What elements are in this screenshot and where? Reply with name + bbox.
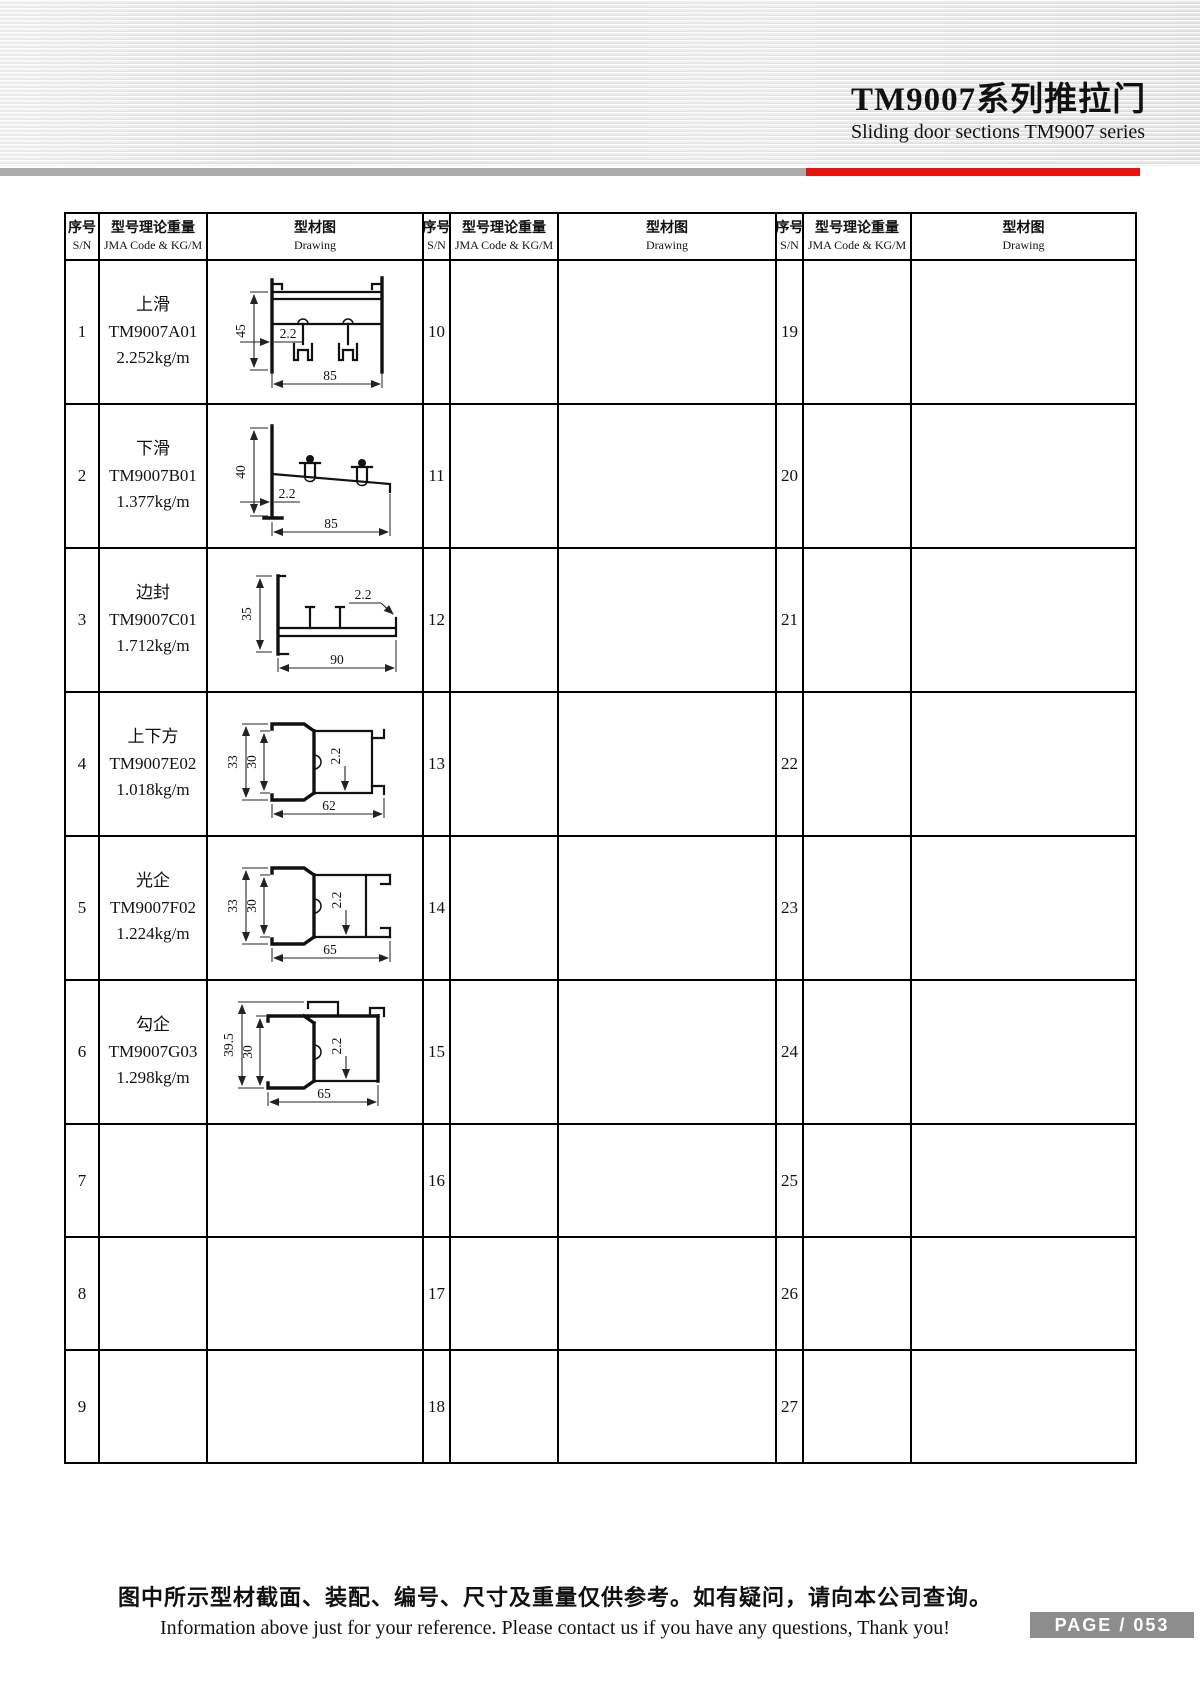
- dim-width: 90: [330, 652, 344, 667]
- profile-code: TM9007E02: [110, 751, 197, 777]
- col-header-code-cn: 型号理论重量: [815, 220, 899, 238]
- col-header-code: 型号理论重量 JMA Code & KG/M: [100, 214, 208, 261]
- page-title: TM9007系列推拉门 Sliding door sections TM9007…: [851, 82, 1146, 143]
- profile-name: 下滑: [136, 436, 170, 462]
- drawing-cell-empty: [559, 693, 777, 837]
- profile-weight: 1.377kg/m: [116, 489, 189, 515]
- code-cell-empty: [451, 1238, 559, 1351]
- profile-drawing-hook-stile: 39.5 30 2.2 65: [210, 982, 420, 1122]
- col-header-drawing-cn: 型材图: [294, 220, 336, 238]
- sn-cell: 15: [424, 981, 451, 1125]
- col-header-drawing-en: Drawing: [646, 238, 688, 253]
- table-group-1: 序号 S/N 型号理论重量 JMA Code & KG/M 型材图 Drawin…: [66, 214, 424, 1464]
- profile-weight: 2.252kg/m: [116, 345, 189, 371]
- col-header-drawing: 型材图 Drawing: [559, 214, 777, 261]
- col-header-sn-en: S/N: [73, 238, 92, 253]
- footer-note-en: Information above just for your referenc…: [0, 1617, 1110, 1640]
- code-cell-empty: [451, 981, 559, 1125]
- code-cell-empty: [451, 1351, 559, 1464]
- col-header-sn-en: S/N: [780, 238, 799, 253]
- sn-cell: 25: [777, 1125, 804, 1238]
- sn-cell: 11: [424, 405, 451, 549]
- sn-cell: 19: [777, 261, 804, 405]
- col-header-sn: 序号 S/N: [66, 214, 100, 261]
- drawing-cell: 33 30 2.2 65: [208, 837, 424, 981]
- profile-drawing-side-seal: 35 2.2 90: [210, 550, 420, 690]
- dim-width: 62: [322, 798, 336, 813]
- drawing-cell: 45 2.2 85: [208, 261, 424, 405]
- profile-code: TM9007A01: [109, 319, 198, 345]
- sn-cell: 1: [66, 261, 100, 405]
- footer-note: 图中所示型材截面、装配、编号、尺寸及重量仅供参考。如有疑问，请向本公司查询。 I…: [0, 1580, 1110, 1640]
- dim-thickness: 2.2: [355, 587, 372, 602]
- col-header-drawing: 型材图 Drawing: [208, 214, 424, 261]
- drawing-cell-empty: [912, 693, 1137, 837]
- profile-drawing-top-slide: 45 2.2 85: [210, 262, 420, 402]
- drawing-cell-empty: [912, 981, 1137, 1125]
- profile-drawing-bottom-slide: 40 2.2 85: [210, 406, 420, 546]
- code-cell-empty: [100, 1125, 208, 1238]
- drawing-cell-empty: [208, 1238, 424, 1351]
- profile-table: 序号 S/N 型号理论重量 JMA Code & KG/M 型材图 Drawin…: [64, 212, 1137, 1464]
- sn-cell: 24: [777, 981, 804, 1125]
- profile-name: 上滑: [136, 292, 170, 318]
- code-cell-empty: [451, 693, 559, 837]
- sn-cell: 12: [424, 549, 451, 693]
- dim-inner-height: 30: [244, 899, 259, 913]
- col-header-sn-cn: 序号: [68, 220, 96, 238]
- col-header-code-en: JMA Code & KG/M: [808, 238, 906, 253]
- profile-weight: 1.712kg/m: [116, 633, 189, 659]
- code-cell: 勾企 TM9007G03 1.298kg/m: [100, 981, 208, 1125]
- profile-weight: 1.018kg/m: [116, 777, 189, 803]
- header-gray-rule: [0, 168, 806, 176]
- sn-cell: 17: [424, 1238, 451, 1351]
- drawing-cell-empty: [559, 837, 777, 981]
- profile-name: 勾企: [136, 1012, 170, 1038]
- col-header-drawing-cn: 型材图: [646, 220, 688, 238]
- sn-cell: 7: [66, 1125, 100, 1238]
- drawing-cell: 39.5 30 2.2 65: [208, 981, 424, 1125]
- dim-thickness: 2.2: [329, 892, 344, 909]
- profile-weight: 1.298kg/m: [116, 1065, 189, 1091]
- col-header-code-en: JMA Code & KG/M: [104, 238, 202, 253]
- sn-cell: 26: [777, 1238, 804, 1351]
- sn-cell: 10: [424, 261, 451, 405]
- profile-name: 上下方: [128, 724, 179, 750]
- sn-cell: 16: [424, 1125, 451, 1238]
- drawing-cell-empty: [912, 1238, 1137, 1351]
- profile-drawing-flat-stile: 33 30 2.2 65: [210, 838, 420, 978]
- dim-inner-height: 30: [240, 1045, 255, 1059]
- col-header-code-en: JMA Code & KG/M: [455, 238, 553, 253]
- col-header-drawing: 型材图 Drawing: [912, 214, 1137, 261]
- code-cell-empty: [804, 981, 912, 1125]
- col-header-sn-en: S/N: [427, 238, 446, 253]
- code-cell-empty: [804, 1125, 912, 1238]
- drawing-cell-empty: [559, 405, 777, 549]
- drawing-cell: 33 30 2.2 62: [208, 693, 424, 837]
- dim-width: 85: [324, 516, 338, 531]
- code-cell-empty: [804, 549, 912, 693]
- code-cell: 边封 TM9007C01 1.712kg/m: [100, 549, 208, 693]
- dim-width: 85: [323, 368, 337, 383]
- profile-name: 边封: [136, 580, 170, 606]
- drawing-cell-empty: [912, 1351, 1137, 1464]
- drawing-cell: 35 2.2 90: [208, 549, 424, 693]
- sn-cell: 20: [777, 405, 804, 549]
- catalog-page: TM9007系列推拉门 Sliding door sections TM9007…: [0, 0, 1200, 1697]
- sn-cell: 6: [66, 981, 100, 1125]
- sn-cell: 23: [777, 837, 804, 981]
- drawing-cell-empty: [912, 261, 1137, 405]
- profile-weight: 1.224kg/m: [116, 921, 189, 947]
- code-cell: 光企 TM9007F02 1.224kg/m: [100, 837, 208, 981]
- drawing-cell-empty: [912, 549, 1137, 693]
- drawing-cell-empty: [912, 405, 1137, 549]
- col-header-sn-cn: 序号: [777, 220, 804, 238]
- sn-cell: 8: [66, 1238, 100, 1351]
- col-header-sn: 序号 S/N: [777, 214, 804, 261]
- profile-name: 光企: [136, 868, 170, 894]
- drawing-cell-empty: [912, 837, 1137, 981]
- col-header-code-cn: 型号理论重量: [111, 220, 195, 238]
- profile-drawing-top-bottom-rail: 33 30 2.2 62: [210, 694, 420, 834]
- code-cell-empty: [451, 837, 559, 981]
- code-cell-empty: [804, 261, 912, 405]
- dim-inner-height: 30: [244, 755, 259, 769]
- sn-cell: 13: [424, 693, 451, 837]
- code-cell-empty: [451, 1125, 559, 1238]
- col-header-code: 型号理论重量 JMA Code & KG/M: [804, 214, 912, 261]
- sn-cell: 22: [777, 693, 804, 837]
- code-cell-empty: [804, 1351, 912, 1464]
- col-header-sn-cn: 序号: [424, 220, 451, 238]
- code-cell: 上下方 TM9007E02 1.018kg/m: [100, 693, 208, 837]
- table-group-2: 序号 S/N 型号理论重量 JMA Code & KG/M 型材图 Drawin…: [424, 214, 777, 1464]
- code-cell-empty: [451, 261, 559, 405]
- col-header-code-cn: 型号理论重量: [462, 220, 546, 238]
- profile-code: TM9007G03: [109, 1039, 198, 1065]
- code-cell-empty: [804, 405, 912, 549]
- drawing-cell-empty: [559, 1125, 777, 1238]
- drawing-cell-empty: [208, 1125, 424, 1238]
- profile-code: TM9007F02: [110, 895, 196, 921]
- col-header-code: 型号理论重量 JMA Code & KG/M: [451, 214, 559, 261]
- code-cell: 上滑 TM9007A01 2.252kg/m: [100, 261, 208, 405]
- dim-height: 45: [233, 324, 248, 338]
- dim-thickness: 2.2: [279, 486, 296, 501]
- profile-code: TM9007B01: [109, 463, 197, 489]
- footer-note-cn: 图中所示型材截面、装配、编号、尺寸及重量仅供参考。如有疑问，请向本公司查询。: [0, 1580, 1110, 1612]
- dim-thickness: 2.2: [328, 748, 343, 765]
- page-title-en: Sliding door sections TM9007 series: [851, 121, 1146, 143]
- sn-cell: 21: [777, 549, 804, 693]
- code-cell-empty: [451, 549, 559, 693]
- drawing-cell: 40 2.2 85: [208, 405, 424, 549]
- sn-cell: 5: [66, 837, 100, 981]
- page-number-badge: PAGE / 053: [1030, 1612, 1194, 1638]
- drawing-cell-empty: [559, 261, 777, 405]
- col-header-drawing-en: Drawing: [1003, 238, 1045, 253]
- col-header-drawing-en: Drawing: [294, 238, 336, 253]
- code-cell-empty: [100, 1238, 208, 1351]
- sn-cell: 2: [66, 405, 100, 549]
- dim-height: 35: [239, 607, 254, 621]
- col-header-drawing-cn: 型材图: [1003, 220, 1045, 238]
- code-cell-empty: [100, 1351, 208, 1464]
- sn-cell: 4: [66, 693, 100, 837]
- code-cell-empty: [804, 837, 912, 981]
- drawing-cell-empty: [559, 981, 777, 1125]
- drawing-cell-empty: [912, 1125, 1137, 1238]
- dim-height: 39.5: [221, 1033, 236, 1057]
- code-cell-empty: [451, 405, 559, 549]
- dim-height: 40: [233, 465, 248, 479]
- dim-thickness: 2.2: [329, 1038, 344, 1055]
- sn-cell: 9: [66, 1351, 100, 1464]
- sn-cell: 18: [424, 1351, 451, 1464]
- sn-cell: 3: [66, 549, 100, 693]
- profile-code: TM9007C01: [109, 607, 197, 633]
- code-cell: 下滑 TM9007B01 1.377kg/m: [100, 405, 208, 549]
- drawing-cell-empty: [208, 1351, 424, 1464]
- dim-height: 33: [225, 755, 240, 769]
- sn-cell: 14: [424, 837, 451, 981]
- page-title-cn: TM9007系列推拉门: [851, 82, 1146, 118]
- dim-width: 65: [317, 1086, 331, 1101]
- dim-height: 33: [225, 899, 240, 913]
- col-header-sn: 序号 S/N: [424, 214, 451, 261]
- dim-width: 65: [323, 942, 337, 957]
- sn-cell: 27: [777, 1351, 804, 1464]
- code-cell-empty: [804, 693, 912, 837]
- header-red-rule: [806, 168, 1140, 176]
- table-group-3: 序号 S/N 型号理论重量 JMA Code & KG/M 型材图 Drawin…: [777, 214, 1137, 1464]
- drawing-cell-empty: [559, 1351, 777, 1464]
- code-cell-empty: [804, 1238, 912, 1351]
- dim-thickness: 2.2: [280, 326, 297, 341]
- drawing-cell-empty: [559, 1238, 777, 1351]
- drawing-cell-empty: [559, 549, 777, 693]
